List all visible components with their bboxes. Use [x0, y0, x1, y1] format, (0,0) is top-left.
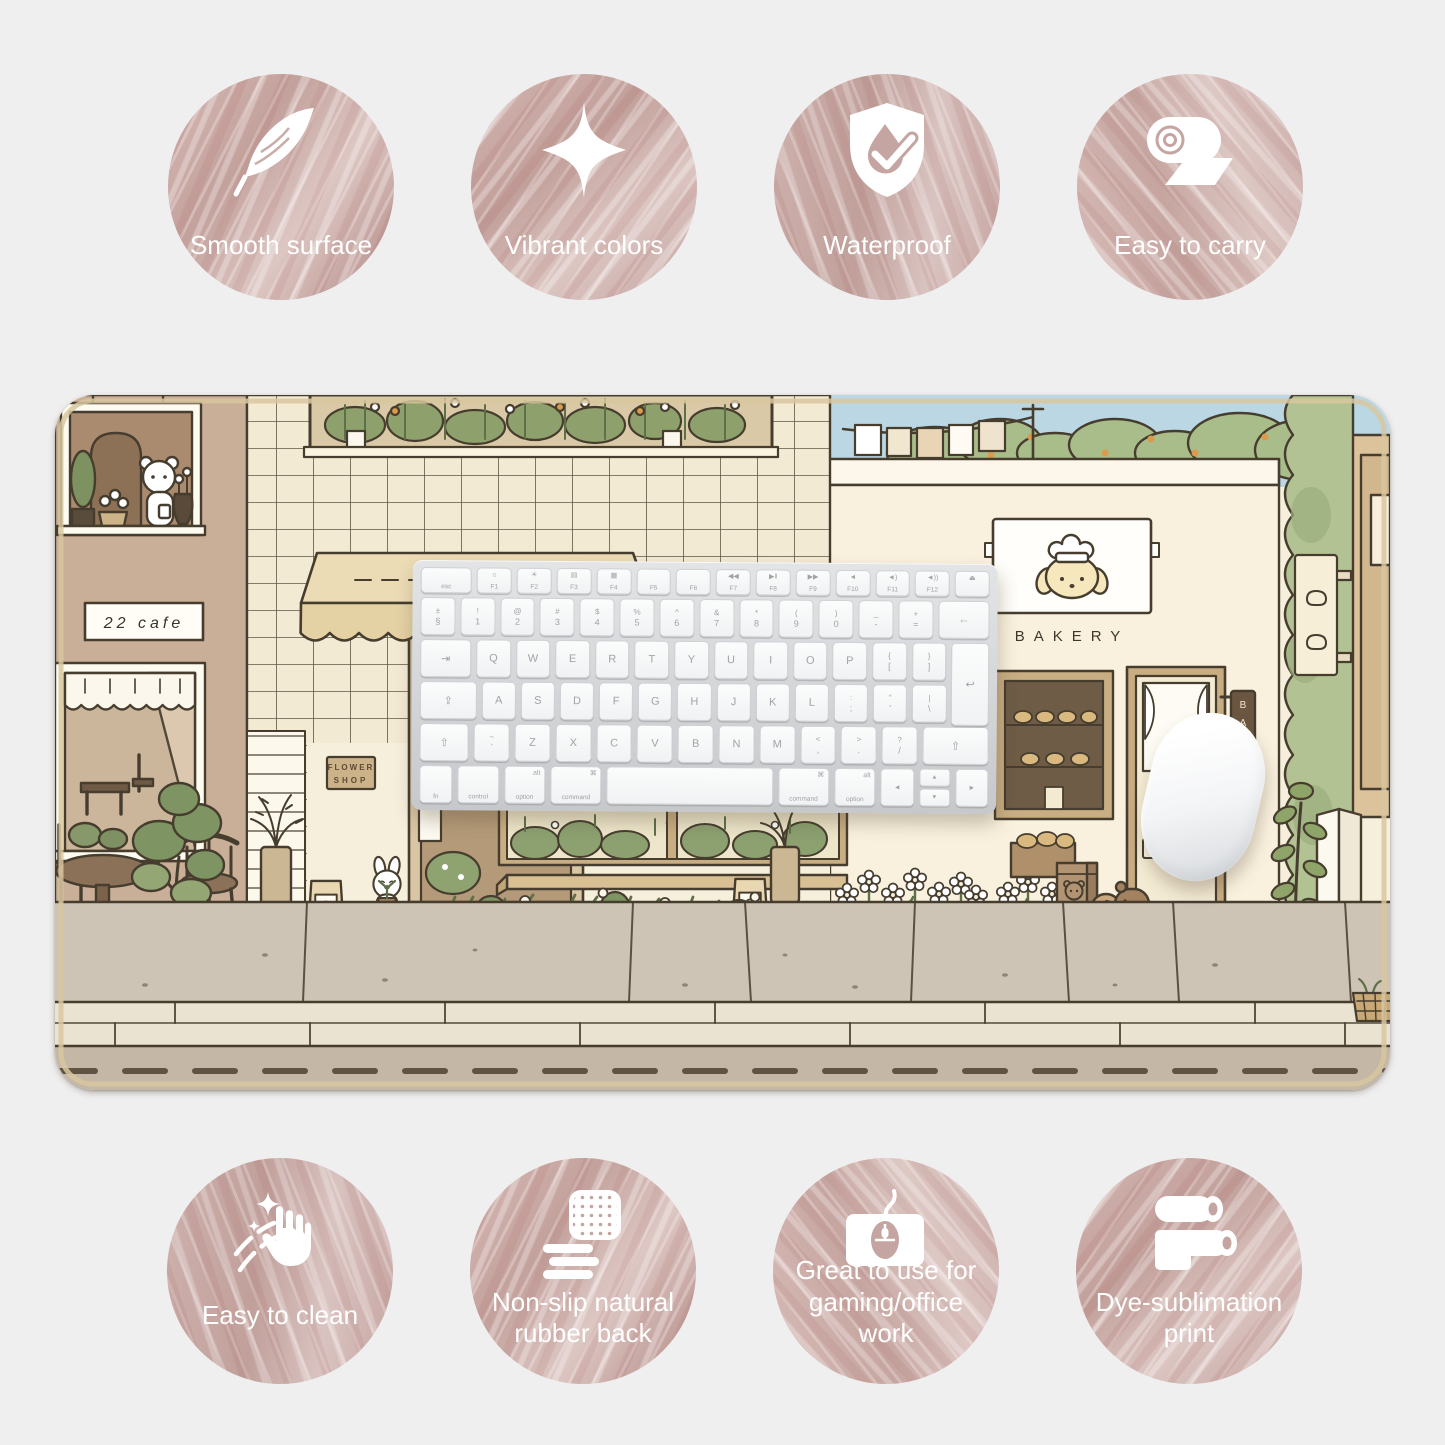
- badge-easy-to-carry: Easy to carry: [1077, 74, 1303, 300]
- key-d[interactable]: D: [560, 682, 594, 720]
- key-f11[interactable]: ◄)F11: [875, 570, 910, 596]
- key-3[interactable]: #3: [540, 598, 575, 636]
- key-control[interactable]: control: [457, 765, 499, 803]
- key-sym[interactable]: ⇧: [419, 723, 469, 761]
- key-p[interactable]: P: [832, 642, 867, 680]
- key-9[interactable]: (9: [779, 600, 814, 638]
- key-sym[interactable]: ↩: [951, 643, 989, 726]
- bakery-wall-text: BAKERY: [1015, 628, 1130, 645]
- key-2[interactable]: @2: [500, 598, 535, 636]
- product-image: Smooth surface Vibrant colors Waterproof: [0, 0, 1445, 1445]
- key-sym[interactable]: ~`: [474, 723, 510, 761]
- key-sym[interactable]: ◄: [881, 768, 914, 806]
- key-f6[interactable]: F6: [676, 569, 711, 595]
- key-sym[interactable]: +=: [898, 600, 933, 638]
- cafe-sign-text: 22 cafe: [103, 615, 184, 632]
- key-arrow[interactable]: ▲: [919, 768, 950, 786]
- key-0[interactable]: )0: [819, 600, 854, 638]
- key-sym[interactable]: ⇪: [420, 681, 477, 719]
- key-sym[interactable]: }]: [912, 642, 947, 680]
- key-b[interactable]: B: [678, 725, 714, 763]
- key-f7[interactable]: ◀◀F7: [716, 569, 751, 595]
- key-g[interactable]: G: [638, 683, 672, 721]
- key-7[interactable]: &7: [699, 599, 734, 637]
- badge-easy-to-clean: Easy to clean: [167, 1158, 393, 1384]
- key-blank[interactable]: [607, 766, 774, 805]
- key-s[interactable]: S: [521, 682, 555, 720]
- key-y[interactable]: Y: [674, 641, 709, 679]
- key-esc[interactable]: esc: [421, 567, 472, 593]
- key-w[interactable]: W: [516, 640, 551, 678]
- key-z[interactable]: Z: [515, 724, 551, 762]
- dye-rollers-icon: [1076, 1184, 1302, 1284]
- cafe-upper-window: [57, 395, 205, 535]
- keyboard[interactable]: esc☼F1☀F2▤F3▦F4F5F6◀◀F7▶‖F8▶▶F9◄F10◄)F11…: [411, 560, 998, 814]
- key-sym[interactable]: <,: [800, 726, 836, 764]
- key-e[interactable]: E: [555, 640, 590, 678]
- key-u[interactable]: U: [714, 641, 749, 679]
- key-a[interactable]: A: [481, 681, 515, 719]
- key-sym[interactable]: ⏏: [955, 571, 990, 597]
- sparkle-icon: [471, 100, 697, 200]
- key-arrows-updown[interactable]: ▲▼: [919, 768, 950, 806]
- feature-label: Non-slip natural rubber back: [486, 1287, 680, 1350]
- key-command[interactable]: ⌘command: [778, 768, 830, 806]
- key-r[interactable]: R: [595, 640, 630, 678]
- key-sym[interactable]: _-: [858, 600, 893, 638]
- key-sym[interactable]: >.: [841, 726, 877, 764]
- key-c[interactable]: C: [596, 724, 632, 762]
- key-option[interactable]: altoption: [834, 768, 876, 806]
- key-f2[interactable]: ☀F2: [517, 568, 552, 594]
- key-sym[interactable]: ⇥: [420, 639, 471, 677]
- key-h[interactable]: H: [677, 683, 711, 721]
- feature-label: Great to use for gaming/office work: [789, 1255, 983, 1350]
- key-m[interactable]: M: [759, 725, 795, 763]
- key-4[interactable]: $4: [580, 598, 615, 636]
- svg-text:B: B: [1240, 700, 1247, 711]
- hand-stars-icon: [167, 1184, 393, 1284]
- key-f1[interactable]: ☼F1: [477, 567, 512, 593]
- key-sym[interactable]: ►: [955, 769, 988, 807]
- key-sym[interactable]: ⇧: [922, 727, 988, 765]
- key-6[interactable]: ^6: [659, 599, 694, 637]
- cafe-sign: 22 cafe: [85, 603, 203, 640]
- key-f5[interactable]: F5: [636, 569, 671, 595]
- key-f9[interactable]: ▶▶F9: [795, 570, 830, 596]
- key-sym[interactable]: :;: [834, 684, 868, 722]
- key-sym[interactable]: ±§: [420, 597, 455, 635]
- key-1[interactable]: !1: [460, 597, 495, 635]
- key-j[interactable]: J: [716, 683, 750, 721]
- key-sym[interactable]: {[: [872, 642, 907, 680]
- feather-icon: [168, 100, 394, 200]
- key-v[interactable]: V: [637, 725, 673, 763]
- sidewalk: [55, 902, 1390, 1090]
- feature-label: Dye-sublimation print: [1092, 1287, 1286, 1350]
- key-command[interactable]: ⌘command: [550, 766, 602, 804]
- key-8[interactable]: *8: [739, 599, 774, 637]
- key-f3[interactable]: ▤F3: [557, 568, 592, 594]
- feature-label: Easy to carry: [1093, 230, 1287, 262]
- key-k[interactable]: K: [756, 683, 790, 721]
- keyboard-keys[interactable]: esc☼F1☀F2▤F3▦F4F5F6◀◀F7▶‖F8▶▶F9◄F10◄)F11…: [419, 567, 990, 807]
- badge-gaming-office: Great to use for gaming/office work: [773, 1158, 999, 1384]
- rolled-mat-icon: [1077, 100, 1303, 200]
- key-option[interactable]: altoption: [504, 766, 546, 804]
- key-sym[interactable]: "': [873, 684, 907, 722]
- key-x[interactable]: X: [555, 724, 591, 762]
- key-sym[interactable]: ←: [938, 601, 989, 639]
- flower-window-box: [304, 395, 778, 457]
- feature-label: Easy to clean: [183, 1300, 377, 1332]
- key-arrow[interactable]: ▼: [919, 788, 950, 806]
- key-f10[interactable]: ◄F10: [835, 570, 870, 596]
- key-n[interactable]: N: [718, 725, 754, 763]
- key-q[interactable]: Q: [476, 639, 511, 677]
- waterproof-shield-icon: [774, 100, 1000, 200]
- key-o[interactable]: O: [793, 642, 828, 680]
- key-f12[interactable]: ◄))F12: [915, 570, 950, 596]
- key-i[interactable]: I: [753, 641, 788, 679]
- flower-shop-sign: FLOWER SHOP: [327, 757, 375, 789]
- key-t[interactable]: T: [634, 641, 669, 679]
- badge-dye-sublimation: Dye-sublimation print: [1076, 1158, 1302, 1384]
- badge-waterproof: Waterproof: [774, 74, 1000, 300]
- feature-label: Smooth surface: [184, 230, 378, 262]
- key-l[interactable]: L: [795, 684, 829, 722]
- badge-non-slip: Non-slip natural rubber back: [470, 1158, 696, 1384]
- key-f8[interactable]: ▶‖F8: [756, 569, 791, 595]
- key-sym[interactable]: |\: [912, 684, 946, 722]
- badge-vibrant-colors: Vibrant colors: [471, 74, 697, 300]
- key-f[interactable]: F: [599, 682, 633, 720]
- feature-label: Vibrant colors: [487, 230, 681, 262]
- svg-text:SHOP: SHOP: [334, 776, 369, 785]
- feature-label: Waterproof: [790, 230, 984, 262]
- badge-smooth-surface: Smooth surface: [168, 74, 394, 300]
- key-f4[interactable]: ▦F4: [596, 568, 631, 594]
- key-sym[interactable]: ?/: [882, 726, 918, 764]
- key-5[interactable]: %5: [619, 598, 654, 636]
- rubber-back-icon: [470, 1184, 696, 1284]
- svg-text:FLOWER: FLOWER: [328, 763, 375, 772]
- key-fn[interactable]: fn: [419, 765, 452, 803]
- bakery-parapet: [827, 459, 1279, 485]
